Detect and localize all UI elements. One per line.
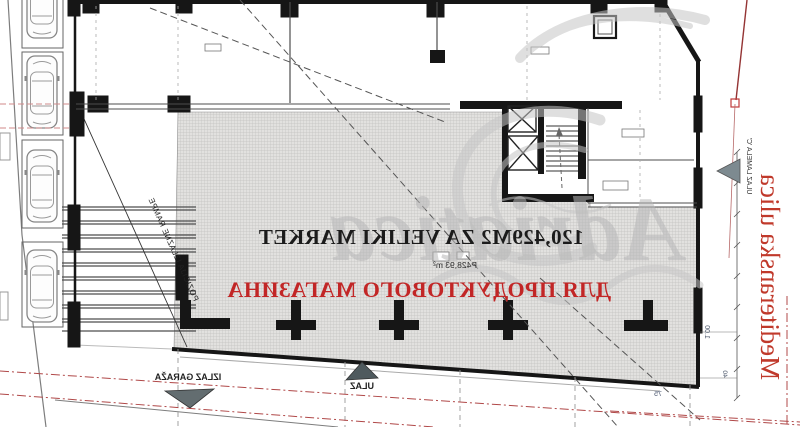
lamela-entrance-arrow-icon <box>717 159 740 183</box>
market-hatch-area <box>174 112 697 387</box>
dimension-line <box>700 149 740 401</box>
ramp-diagonal-line <box>80 110 187 347</box>
floor-plan-drawing <box>0 0 800 427</box>
stair-direction-arrow <box>556 127 563 136</box>
floor-plan-sheet: Adriatica 120,429M2 ZA VELIKI MARKET P42… <box>0 0 800 427</box>
garage-exit-arrow-icon <box>165 389 214 408</box>
